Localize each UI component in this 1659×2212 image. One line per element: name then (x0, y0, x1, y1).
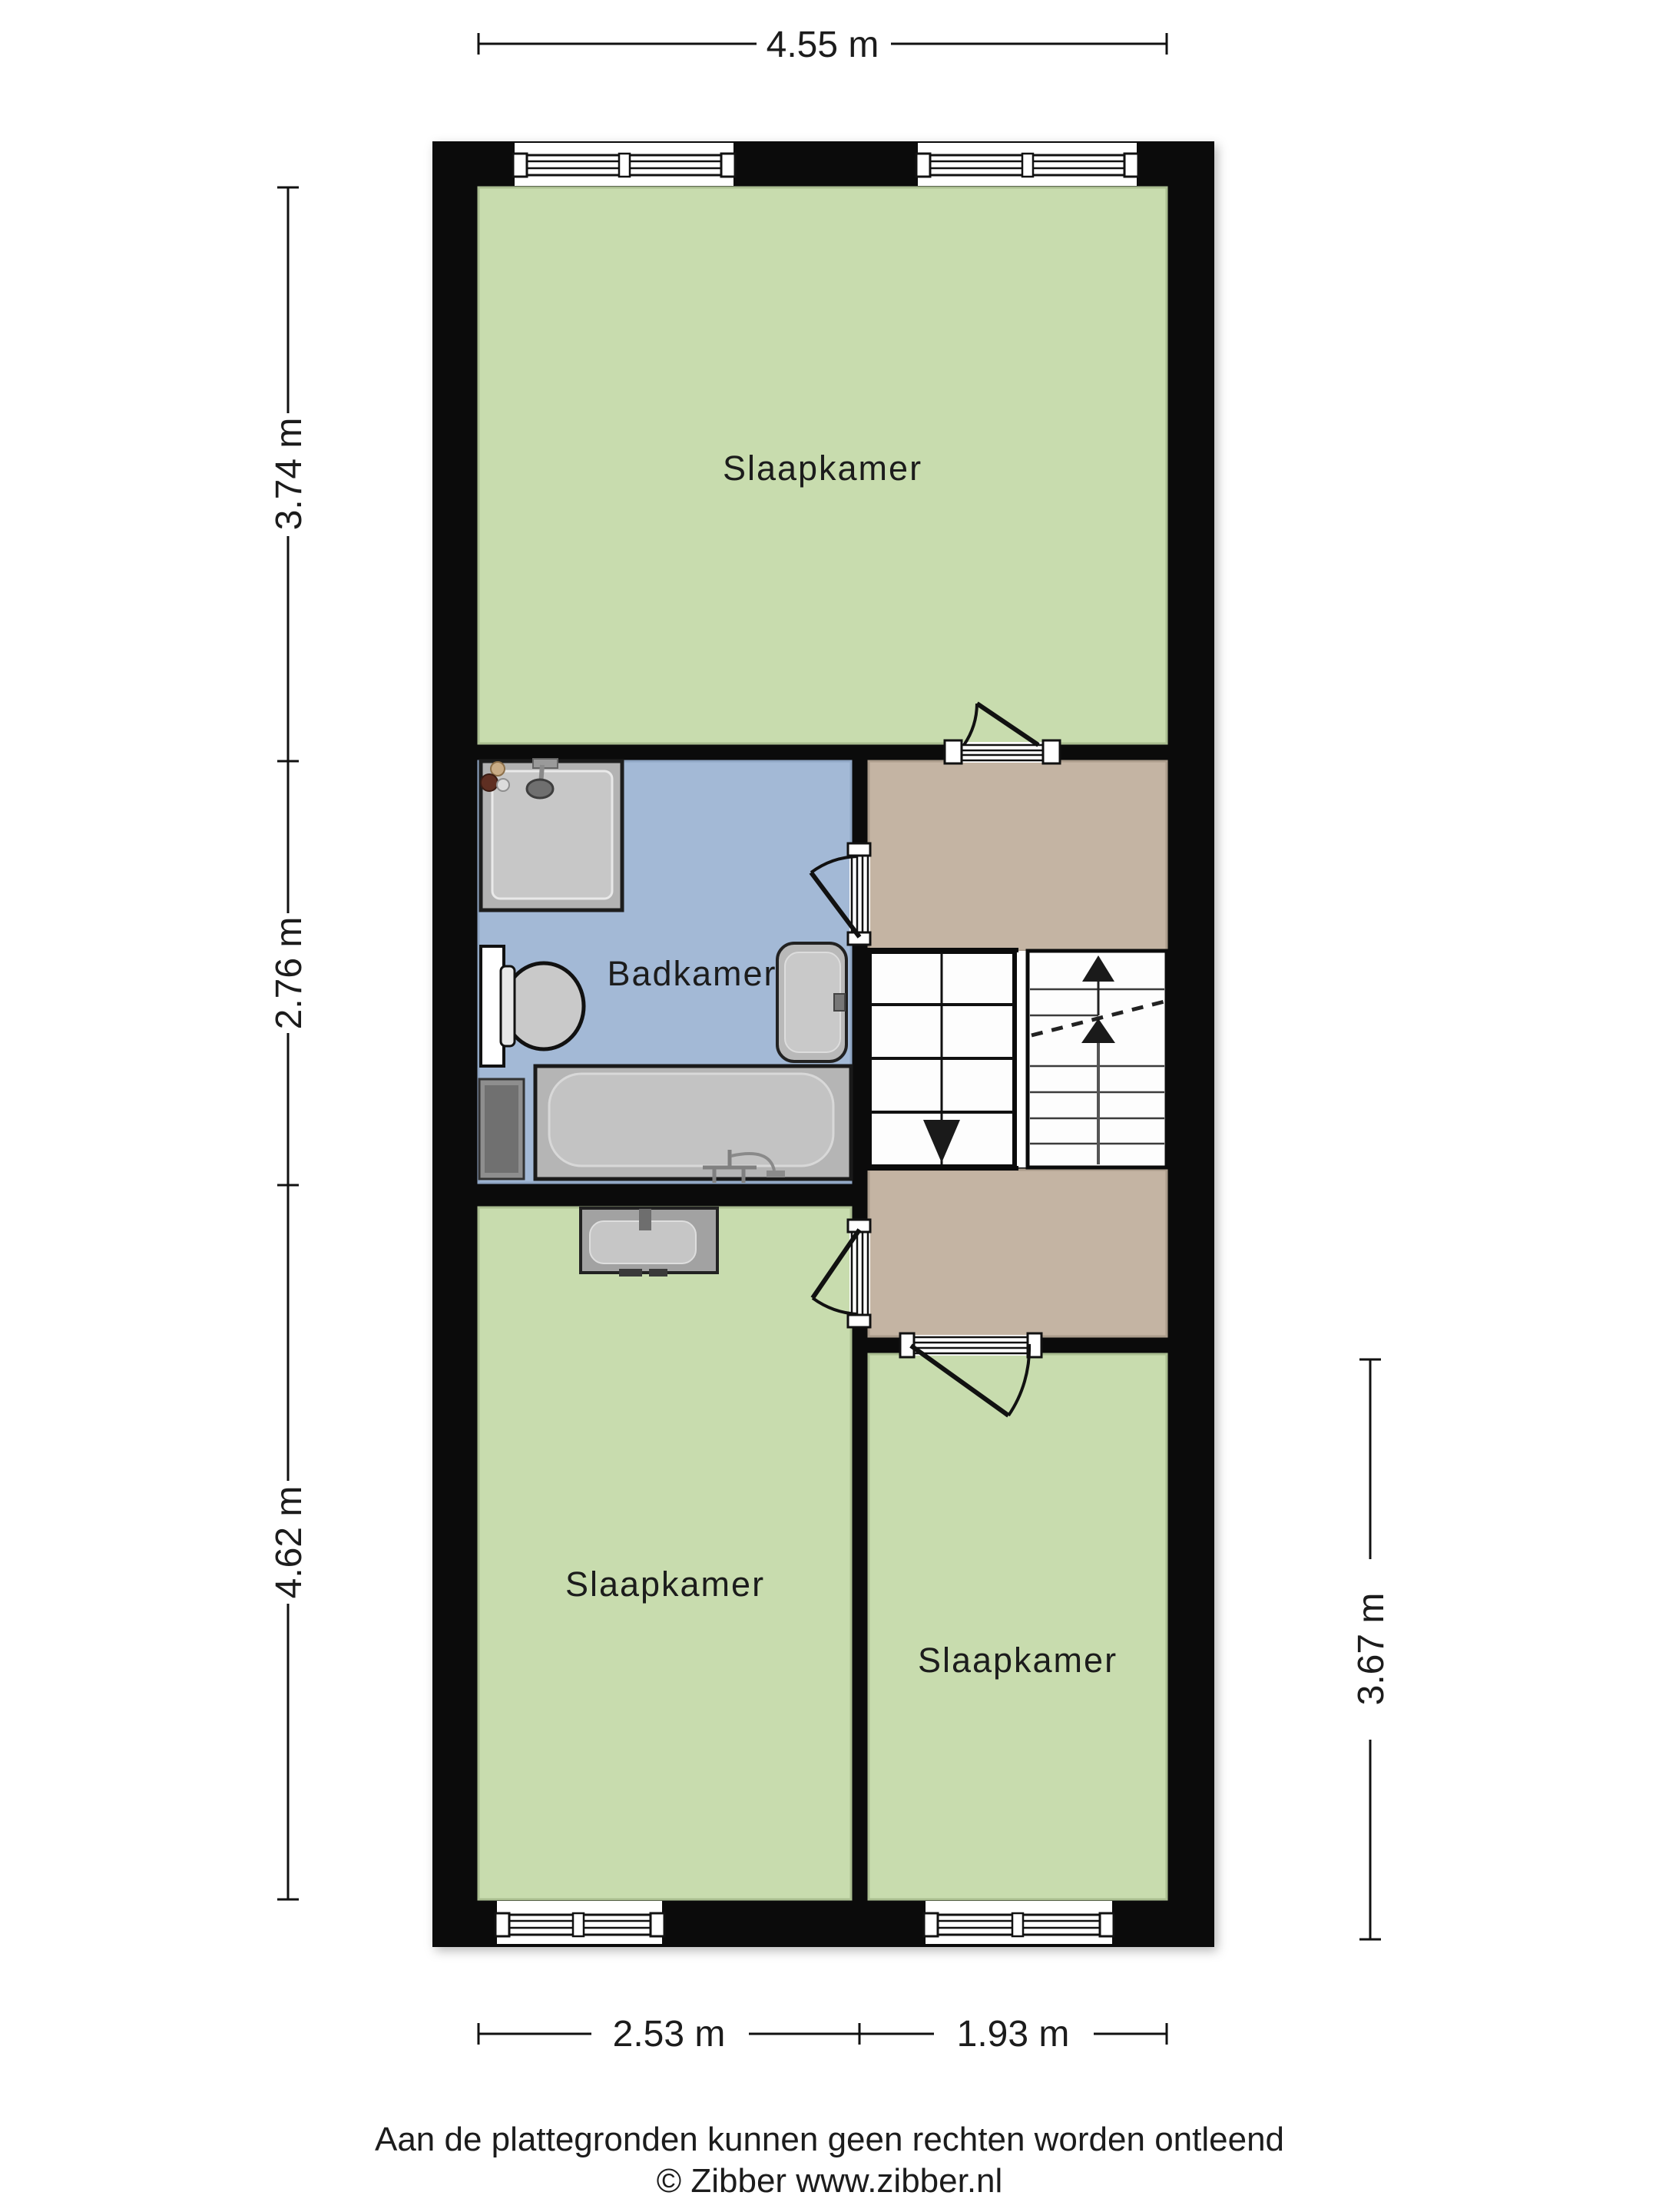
window-top-right (916, 143, 1138, 186)
footer-copyright: © Zibber www.zibber.nl (657, 2162, 1003, 2200)
stairs-divider (1017, 952, 1026, 1166)
floorplan-svg: Slaapkamer Badkamer Slaapkamer Slaapkame… (0, 0, 1659, 2212)
dimension-label-left-2: 2.76 m (269, 917, 310, 1030)
dimension-left: 3.74 m 2.76 m 4.62 m (269, 187, 310, 1899)
cabinet-icon (479, 1079, 524, 1179)
room-label-slaapkamer-bottom-right: Slaapkamer (918, 1641, 1118, 1680)
bathtub-icon (535, 1066, 851, 1183)
dimension-label-bottom-2: 1.93 m (957, 2014, 1070, 2055)
washbasin-icon (777, 943, 846, 1061)
dimension-label-left-1: 3.74 m (269, 418, 310, 531)
floorplan: Slaapkamer Badkamer Slaapkamer Slaapkame… (432, 141, 1214, 1947)
room-label-slaapkamer-top: Slaapkamer (723, 449, 922, 488)
footer-disclaimer: Aan de plattegronden kunnen geen rechten… (375, 2121, 1284, 2158)
floorplan-page: Slaapkamer Badkamer Slaapkamer Slaapkame… (0, 0, 1659, 2212)
dimension-bottom: 2.53 m 1.93 m (478, 2014, 1167, 2055)
room-slaapkamer-bottom-right (869, 1354, 1167, 1899)
room-slaapkamer-bottom-left (478, 1207, 851, 1899)
room-label-badkamer: Badkamer (607, 954, 777, 993)
room-label-slaapkamer-bottom-left: Slaapkamer (565, 1565, 765, 1604)
dimension-label-top: 4.55 m (767, 25, 879, 65)
landing-upper (869, 761, 1167, 951)
shower-icon (481, 759, 622, 910)
window-top-left (513, 143, 735, 186)
dimension-label-bottom-1: 2.53 m (613, 2014, 726, 2055)
window-bottom-right (924, 1901, 1114, 1944)
dimension-label-right: 3.67 m (1351, 1593, 1392, 1706)
sink-icon (581, 1208, 717, 1277)
window-bottom-left (495, 1901, 664, 1944)
dimension-label-left-3: 4.62 m (269, 1486, 310, 1599)
landing-lower (869, 1170, 1167, 1336)
dimension-top: 4.55 m (478, 25, 1167, 65)
dimension-right: 3.67 m (1351, 1359, 1392, 1939)
